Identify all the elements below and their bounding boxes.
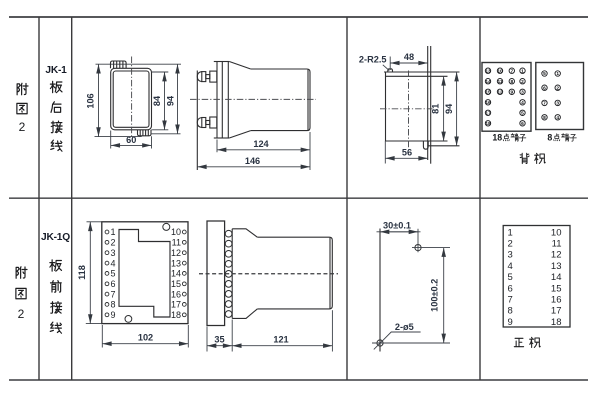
svg-text:17: 17 [485, 110, 491, 116]
svg-text:JK-1Q: JK-1Q [41, 232, 70, 243]
svg-text:106: 106 [86, 93, 96, 108]
svg-text:11: 11 [552, 239, 562, 250]
svg-text:18: 18 [492, 133, 502, 143]
svg-text:11: 11 [497, 79, 502, 85]
svg-text:16: 16 [171, 289, 181, 299]
svg-text:12: 12 [171, 248, 181, 258]
svg-text:2: 2 [508, 239, 513, 250]
svg-text:118: 118 [77, 265, 87, 280]
svg-text:8: 8 [508, 306, 513, 317]
svg-text:8: 8 [547, 133, 552, 143]
svg-text:4: 4 [508, 261, 513, 272]
svg-text:1: 1 [556, 71, 559, 77]
svg-text:18: 18 [485, 121, 491, 127]
svg-text:4: 4 [521, 100, 524, 106]
svg-text:1: 1 [508, 227, 513, 238]
svg-text:94: 94 [444, 103, 454, 114]
svg-text:15: 15 [551, 283, 562, 294]
svg-text:2: 2 [556, 85, 559, 91]
svg-text:2: 2 [111, 238, 116, 248]
svg-text:7: 7 [111, 289, 116, 299]
svg-text:JK-1: JK-1 [45, 65, 67, 76]
svg-text:12: 12 [551, 250, 562, 261]
svg-text:2: 2 [521, 79, 524, 85]
svg-text:14: 14 [171, 269, 181, 279]
svg-text:10: 10 [551, 227, 562, 238]
svg-text:9: 9 [508, 317, 513, 328]
svg-text:7: 7 [543, 101, 546, 107]
svg-text:94: 94 [165, 95, 175, 106]
svg-text:14: 14 [485, 79, 491, 85]
svg-text:8: 8 [510, 79, 513, 85]
svg-text:3: 3 [521, 89, 524, 95]
svg-text:1: 1 [521, 68, 524, 74]
svg-text:17: 17 [551, 306, 562, 317]
svg-text:11: 11 [172, 238, 181, 248]
svg-text:13: 13 [551, 261, 562, 272]
svg-text:5: 5 [508, 272, 513, 283]
svg-text:4: 4 [111, 258, 116, 268]
svg-text:17: 17 [171, 300, 181, 310]
svg-text:13: 13 [171, 258, 181, 268]
svg-text:5: 5 [111, 269, 116, 279]
svg-text:35: 35 [214, 335, 224, 345]
svg-text:5: 5 [543, 71, 546, 77]
svg-text:1: 1 [111, 227, 116, 237]
svg-text:3: 3 [111, 248, 116, 258]
svg-text:81: 81 [431, 104, 441, 114]
svg-text:10: 10 [171, 227, 181, 237]
svg-text:12: 12 [497, 89, 503, 95]
svg-text:10: 10 [497, 68, 503, 74]
svg-text:15: 15 [485, 89, 491, 95]
svg-text:6: 6 [521, 121, 524, 127]
svg-text:7: 7 [508, 294, 513, 305]
svg-text:16: 16 [485, 100, 491, 106]
svg-text:3: 3 [556, 101, 559, 107]
svg-text:16: 16 [551, 294, 562, 305]
svg-text:8: 8 [543, 115, 546, 121]
svg-text:30±0.1: 30±0.1 [383, 221, 411, 231]
svg-text:102: 102 [138, 333, 153, 343]
svg-text:146: 146 [245, 156, 260, 166]
svg-text:121: 121 [273, 335, 288, 345]
svg-text:100±0.2: 100±0.2 [429, 279, 439, 312]
svg-text:56: 56 [402, 148, 412, 158]
svg-text:18: 18 [171, 310, 181, 320]
svg-text:2: 2 [18, 307, 25, 321]
svg-text:14: 14 [551, 272, 562, 283]
svg-text:5: 5 [521, 110, 524, 116]
svg-text:9: 9 [510, 89, 513, 95]
svg-text:2: 2 [19, 120, 26, 134]
svg-text:13: 13 [485, 68, 491, 74]
svg-text:4: 4 [556, 115, 559, 121]
svg-text:18: 18 [551, 317, 562, 328]
svg-text:2-ø5: 2-ø5 [395, 322, 414, 332]
svg-text:2-R2.5: 2-R2.5 [359, 54, 387, 64]
svg-text:6: 6 [508, 283, 513, 294]
svg-text:7: 7 [510, 68, 513, 74]
svg-text:6: 6 [111, 279, 116, 289]
svg-text:8: 8 [111, 300, 116, 310]
svg-text:3: 3 [508, 250, 513, 261]
svg-text:48: 48 [404, 52, 414, 62]
svg-text:60: 60 [126, 135, 136, 145]
svg-text:6: 6 [543, 85, 546, 91]
svg-text:15: 15 [171, 279, 181, 289]
svg-text:124: 124 [253, 139, 269, 149]
svg-text:84: 84 [152, 95, 162, 106]
svg-text:9: 9 [111, 310, 116, 320]
